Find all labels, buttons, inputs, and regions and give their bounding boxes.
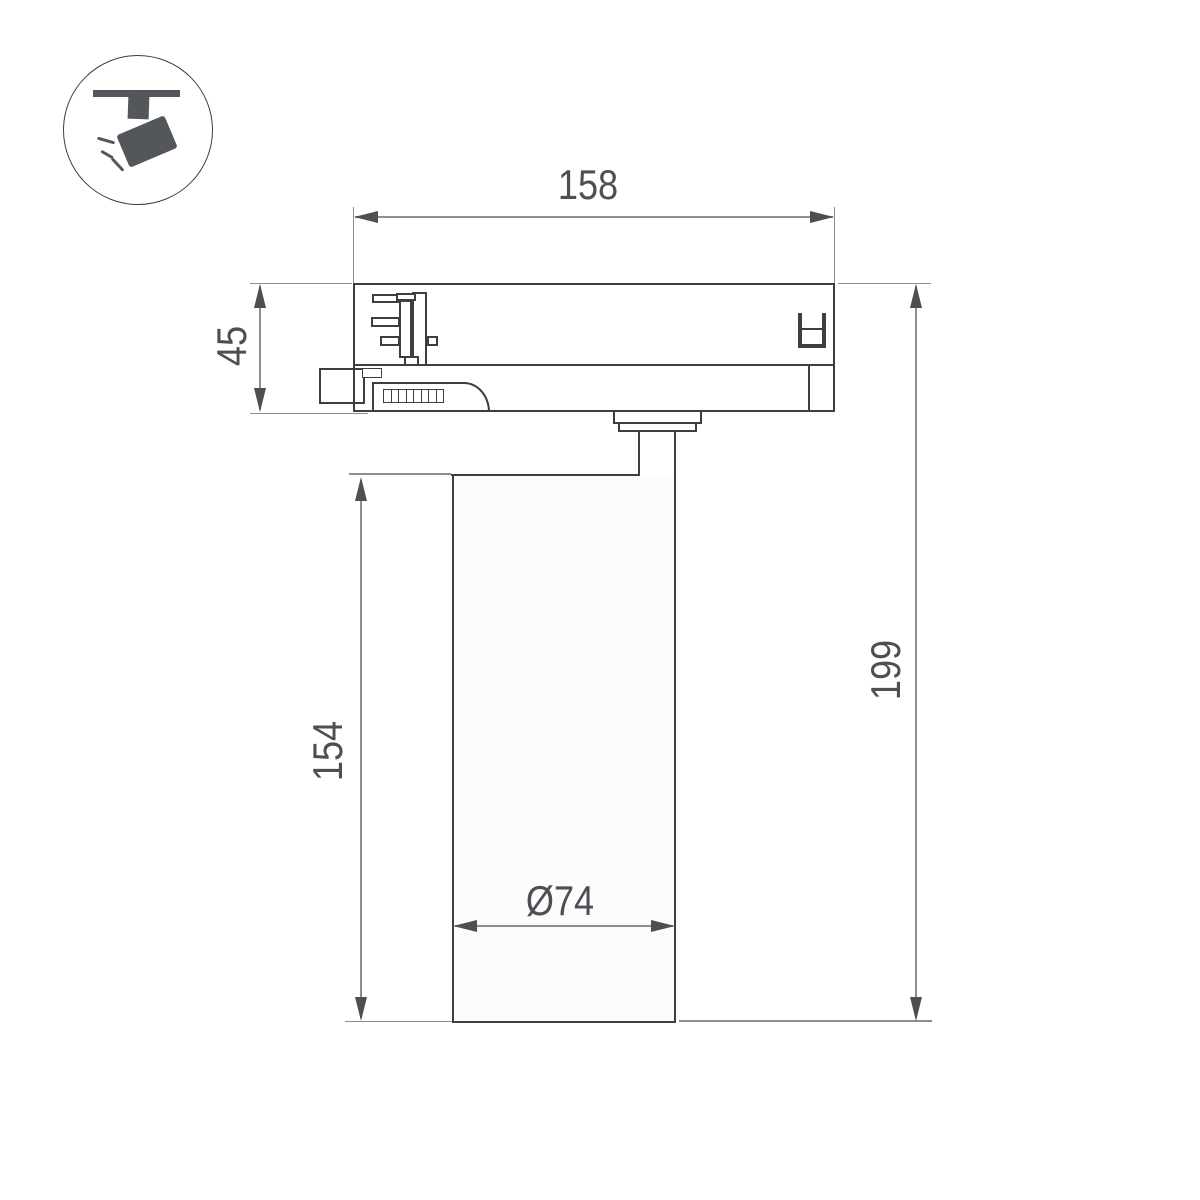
connector-prong [380,336,400,346]
u-clip-left-wall [798,313,802,348]
u-clip-right-wall [822,313,826,348]
arrowhead-left [453,920,477,932]
lamp-stem [638,432,676,476]
extension-line [250,413,368,414]
dimension-label: Ø74 [526,880,594,922]
arrowhead-down [355,997,367,1021]
dimension-line [915,286,916,1018]
lamp-cylinder-top-edge [451,474,640,476]
latch-detail-rect [362,368,382,378]
dimension-line [355,216,833,217]
connector-cap [396,293,416,301]
lamp-cylinder [452,474,676,1023]
arrowhead-left [354,211,378,223]
dimension-label: 158 [558,164,618,206]
arrowhead-down [254,388,266,412]
connector-tab [427,336,438,346]
dimension-label: 45 [211,326,253,366]
arrowhead-down [910,997,922,1021]
u-clip-bottom [798,344,826,348]
extension-line [679,1020,932,1021]
connector-column [412,292,427,366]
adapter-end-divider [808,366,810,412]
icon-stem [128,96,150,120]
adapter-latch [319,368,365,404]
arrowhead-right [651,920,675,932]
mount-flange-upper [613,412,702,424]
arrowhead-up [355,477,367,501]
dimension-line [360,480,361,1018]
track-spotlight-icon [0,0,230,230]
extension-line [349,473,451,474]
technical-drawing-canvas: 158 45 154 199 Ø74 [0,0,1200,1200]
arrowhead-right [810,211,834,223]
dip-switch [383,389,444,403]
connector-prong [371,317,400,327]
mount-flange-lower [618,424,697,432]
dimension-label: 199 [865,640,907,700]
dip-switch-cells [384,390,443,402]
connector-bar [399,300,412,358]
u-clip-crossbar [802,328,822,330]
dimension-label: 154 [307,721,349,781]
arrowhead-up [254,284,266,308]
arrowhead-up [910,284,922,308]
dimension-line [455,925,673,926]
